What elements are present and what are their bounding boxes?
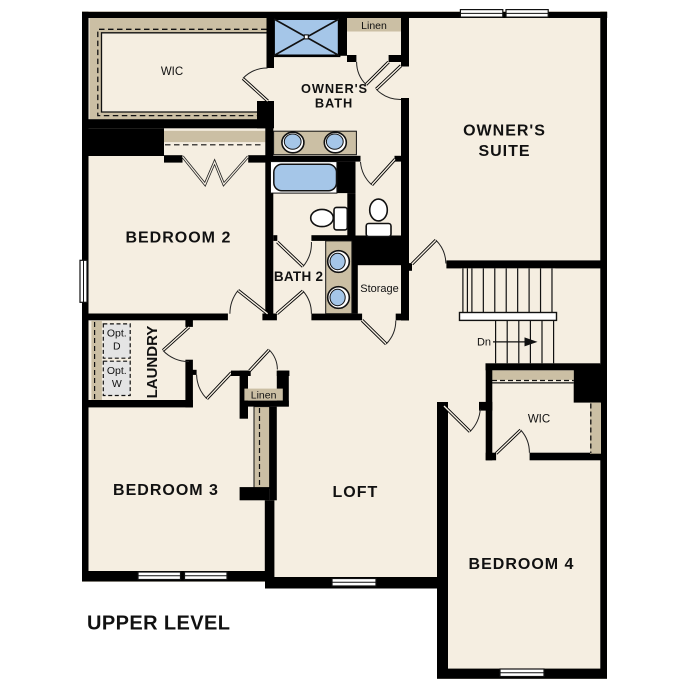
svg-text:BATH: BATH: [315, 96, 353, 111]
svg-text:OWNER'S: OWNER'S: [301, 81, 368, 96]
svg-text:UPPER LEVEL: UPPER LEVEL: [87, 613, 230, 635]
svg-text:W: W: [112, 378, 122, 390]
svg-text:OWNER'S: OWNER'S: [463, 123, 546, 140]
svg-text:BEDROOM 3: BEDROOM 3: [113, 482, 219, 499]
svg-text:WIC: WIC: [161, 66, 183, 78]
svg-text:BATH 2: BATH 2: [274, 269, 324, 284]
svg-text:Dn: Dn: [477, 337, 491, 349]
svg-text:BEDROOM 2: BEDROOM 2: [125, 230, 231, 247]
svg-text:LAUNDRY: LAUNDRY: [144, 326, 161, 399]
svg-text:Opt.: Opt.: [107, 328, 127, 340]
svg-text:LOFT: LOFT: [333, 484, 379, 501]
svg-text:D: D: [113, 341, 121, 353]
svg-text:SUITE: SUITE: [478, 143, 530, 160]
svg-text:Linen: Linen: [251, 389, 277, 401]
svg-text:WIC: WIC: [528, 413, 550, 425]
svg-text:Linen: Linen: [361, 20, 387, 32]
svg-text:BEDROOM 4: BEDROOM 4: [469, 556, 575, 573]
svg-text:Storage: Storage: [360, 283, 399, 295]
svg-text:Opt.: Opt.: [107, 365, 127, 377]
